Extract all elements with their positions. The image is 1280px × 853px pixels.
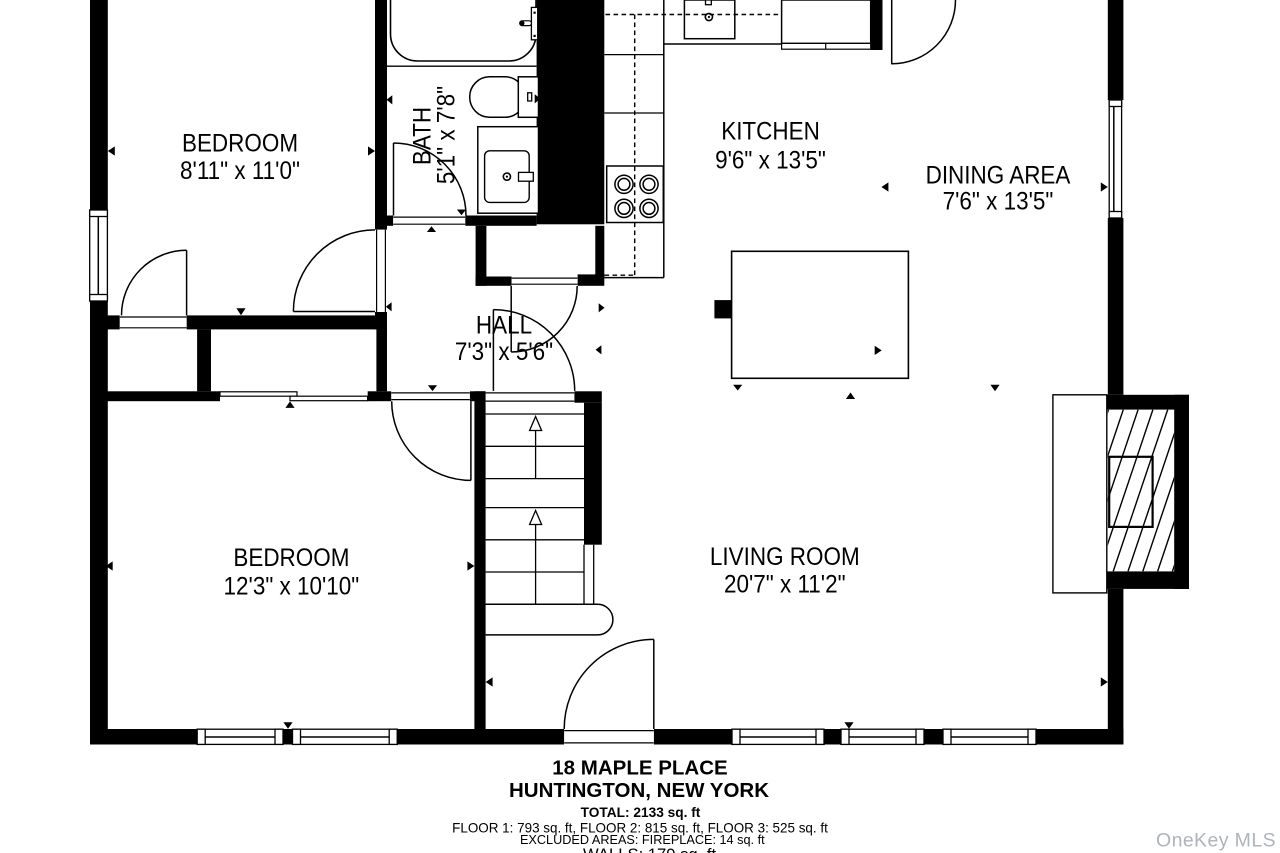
svg-text:12'3" x 10'10": 12'3" x 10'10" xyxy=(224,572,360,601)
svg-text:HALL: HALL xyxy=(476,311,532,340)
svg-text:BEDROOM: BEDROOM xyxy=(182,129,298,158)
svg-text:20'7" x 11'2": 20'7" x 11'2" xyxy=(724,570,846,599)
svg-text:7'6" x 13'5": 7'6" x 13'5" xyxy=(943,187,1054,216)
svg-text:KITCHEN: KITCHEN xyxy=(721,117,820,146)
svg-text:8'11" x 11'0": 8'11" x 11'0" xyxy=(180,157,300,186)
svg-text:TOTAL: 2133 sq. ft: TOTAL: 2133 sq. ft xyxy=(581,805,701,820)
svg-text:LIVING ROOM: LIVING ROOM xyxy=(710,543,860,572)
svg-text:BEDROOM: BEDROOM xyxy=(233,544,349,573)
svg-text:9'6" x 13'5": 9'6" x 13'5" xyxy=(715,146,826,175)
svg-text:OneKey MLS: OneKey MLS xyxy=(1156,829,1276,851)
svg-text:HUNTINGTON, NEW YORK: HUNTINGTON, NEW YORK xyxy=(509,779,769,802)
svg-text:7'3" x 5'6": 7'3" x 5'6" xyxy=(455,338,553,367)
svg-text:DINING AREA: DINING AREA xyxy=(926,161,1071,190)
svg-text:5'1" x 7'8": 5'1" x 7'8" xyxy=(432,86,461,184)
svg-text:18 MAPLE PLACE: 18 MAPLE PLACE xyxy=(552,757,727,780)
svg-text:WALLS: 179 sq. ft: WALLS: 179 sq. ft xyxy=(583,845,717,853)
